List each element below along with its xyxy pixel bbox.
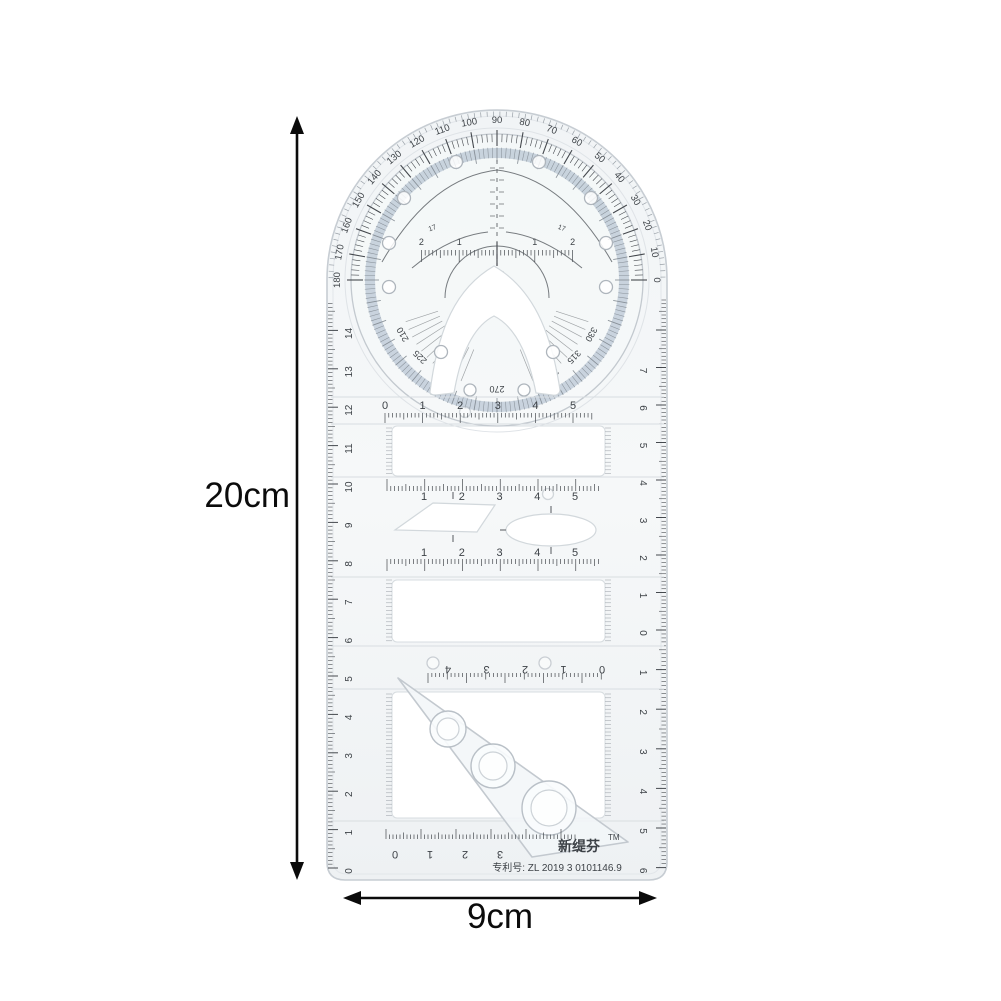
svg-text:1: 1: [637, 593, 648, 599]
svg-text:3: 3: [483, 663, 489, 675]
height-dimension-arrow: [290, 116, 304, 880]
svg-text:1: 1: [420, 400, 426, 412]
svg-text:2: 2: [637, 555, 648, 561]
svg-text:4: 4: [532, 400, 538, 412]
svg-text:0: 0: [651, 277, 662, 282]
svg-text:13: 13: [344, 366, 355, 378]
svg-text:3: 3: [495, 400, 501, 412]
svg-text:9: 9: [344, 522, 355, 528]
brand-text: 新缇芬: [558, 838, 601, 854]
svg-text:4: 4: [534, 491, 540, 503]
svg-text:14: 14: [344, 327, 355, 339]
svg-text:5: 5: [572, 547, 578, 559]
svg-text:5: 5: [637, 828, 648, 834]
svg-text:1: 1: [637, 670, 648, 676]
svg-text:8: 8: [344, 561, 355, 567]
svg-text:0: 0: [392, 848, 398, 860]
svg-text:3: 3: [637, 518, 648, 524]
svg-text:0: 0: [637, 630, 648, 636]
svg-text:5: 5: [344, 676, 355, 682]
svg-text:3: 3: [496, 547, 502, 559]
svg-text:2: 2: [459, 547, 465, 559]
svg-text:270: 270: [489, 384, 504, 394]
window-cutout-2: [392, 580, 605, 642]
svg-text:5: 5: [570, 400, 576, 412]
svg-text:0: 0: [344, 868, 355, 874]
svg-text:1: 1: [421, 491, 427, 503]
svg-text:2: 2: [462, 848, 468, 860]
svg-text:10: 10: [344, 481, 355, 493]
svg-text:2: 2: [522, 663, 528, 675]
svg-text:1: 1: [427, 848, 433, 860]
product-photo: 0102030405060708090100110120130140150160…: [0, 0, 1001, 1001]
patent-text: 专利号: ZL 2019 3 0101146.9: [492, 861, 622, 874]
svg-text:2: 2: [637, 709, 648, 715]
svg-text:4: 4: [637, 480, 648, 486]
svg-text:3: 3: [344, 753, 355, 759]
svg-text:4: 4: [637, 789, 648, 795]
svg-text:7: 7: [344, 599, 355, 605]
svg-text:12: 12: [344, 404, 355, 416]
svg-text:3: 3: [637, 749, 648, 755]
svg-text:10: 10: [648, 246, 661, 258]
brand-tm: TM: [608, 833, 620, 842]
width-dimension-label: 9cm: [420, 899, 580, 934]
svg-text:4: 4: [534, 547, 540, 559]
svg-text:1: 1: [560, 663, 566, 675]
svg-text:90: 90: [492, 115, 503, 126]
svg-text:7: 7: [637, 368, 648, 374]
ellipse-cutout: [506, 514, 596, 546]
svg-text:2: 2: [570, 237, 575, 247]
svg-text:6: 6: [344, 637, 355, 643]
svg-text:4: 4: [445, 663, 451, 675]
svg-text:0: 0: [382, 400, 388, 412]
svg-text:2: 2: [457, 400, 463, 412]
svg-text:5: 5: [572, 491, 578, 503]
svg-text:180: 180: [332, 272, 343, 288]
svg-text:11: 11: [344, 443, 355, 454]
svg-text:3: 3: [496, 491, 502, 503]
geometric-ruler: 0102030405060708090100110120130140150160…: [0, 0, 1001, 1001]
svg-text:80: 80: [519, 117, 531, 130]
window-cutout-1: [392, 426, 605, 476]
svg-text:5: 5: [637, 443, 648, 449]
svg-text:2: 2: [459, 491, 465, 503]
height-dimension-label: 20cm: [158, 478, 290, 513]
svg-text:6: 6: [637, 868, 648, 874]
svg-text:4: 4: [344, 714, 355, 720]
svg-text:6: 6: [637, 405, 648, 411]
svg-text:1: 1: [421, 547, 427, 559]
svg-text:2: 2: [419, 237, 424, 247]
svg-text:3: 3: [497, 848, 503, 860]
svg-text:0: 0: [599, 663, 605, 675]
svg-text:2: 2: [344, 791, 355, 797]
svg-text:1: 1: [344, 829, 355, 835]
